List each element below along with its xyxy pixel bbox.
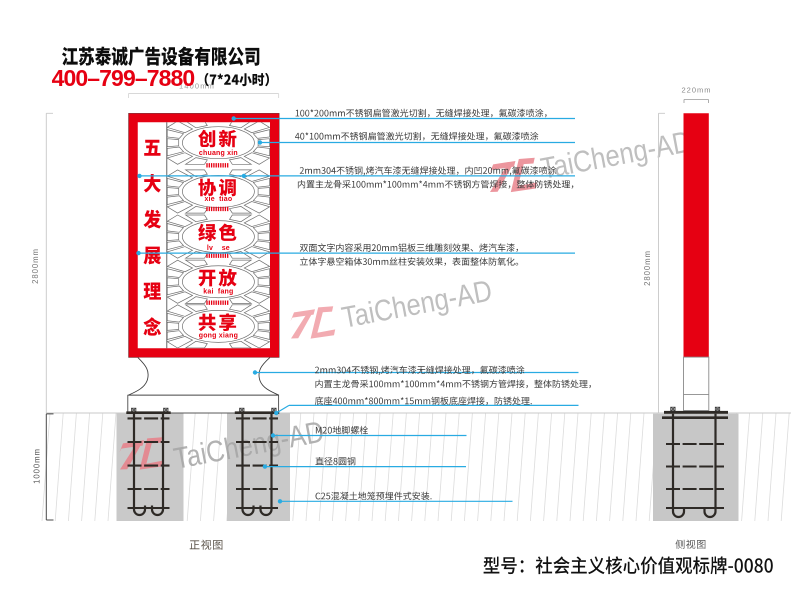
svg-text:400–799–7880: 400–799–7880	[52, 65, 195, 91]
svg-text:xie tiao: xie tiao	[204, 196, 232, 203]
svg-text:2800mm: 2800mm	[643, 250, 652, 286]
svg-text:220mm: 220mm	[681, 85, 711, 94]
svg-text:chuang xin: chuang xin	[199, 150, 238, 157]
svg-text:gong xiang: gong xiang	[199, 333, 238, 340]
svg-text:2800mm: 2800mm	[31, 248, 40, 284]
svg-text:lv se: lv se	[207, 245, 230, 252]
svg-text:kai fang: kai fang	[203, 288, 233, 295]
svg-text:1000mm: 1000mm	[33, 448, 42, 484]
